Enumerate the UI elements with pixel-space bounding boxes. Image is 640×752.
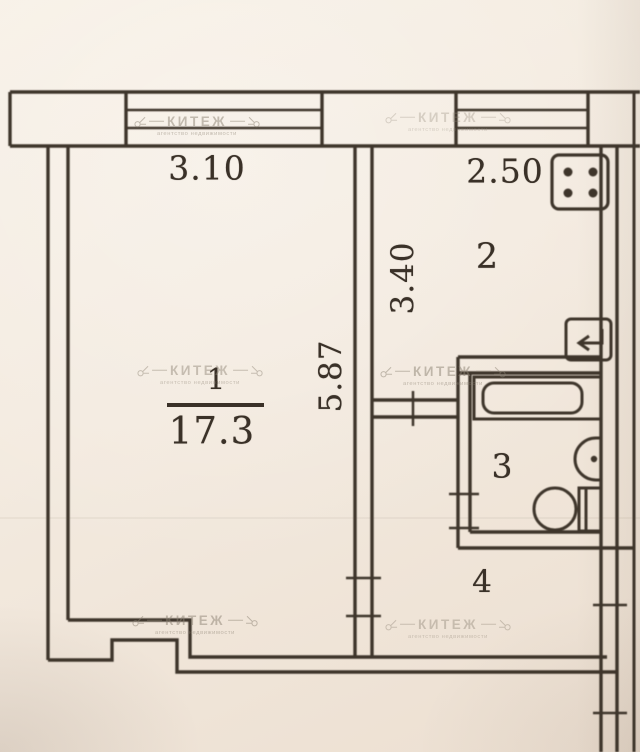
room1-partition-wall xyxy=(355,146,372,657)
corridor-bottom-wall xyxy=(372,400,458,417)
right-wall xyxy=(601,146,617,752)
watermark: КИТЕЖ агентство недвижимости xyxy=(132,613,258,636)
watermark-flourish-icon xyxy=(248,115,260,127)
watermark-flourish-icon xyxy=(499,618,511,630)
room3-number: 3 xyxy=(492,447,513,486)
kitchen-width-dimension: 2.50 xyxy=(466,152,543,191)
bathroom-door-ticks xyxy=(449,494,479,528)
watermark-flourish-icon xyxy=(380,365,392,377)
watermark: КИТЕЖ агентство недвижимости xyxy=(134,114,260,137)
room1-fraction-line xyxy=(167,403,264,407)
watermark-flourish-icon xyxy=(137,364,149,376)
entrance-door-ticks xyxy=(593,605,627,713)
watermark-flourish-icon xyxy=(385,618,397,630)
room1-depth-dimension: 5.87 xyxy=(313,339,349,412)
watermark-flourish-icon xyxy=(494,365,506,377)
watermark-flourish-icon xyxy=(385,111,397,123)
room4-number: 4 xyxy=(472,564,492,600)
watermark-flourish-icon xyxy=(251,364,263,376)
kitchen-depth-dimension: 3.40 xyxy=(385,241,421,314)
sink-icon xyxy=(575,438,601,480)
watermark: КИТЕЖ агентство недвижимости xyxy=(137,363,263,386)
watermark-flourish-icon xyxy=(134,115,146,127)
watermark: КИТЕЖ агентство недвижимости xyxy=(385,617,511,640)
room1-width-dimension: 3.10 xyxy=(168,149,245,188)
watermark-flourish-icon xyxy=(132,614,144,626)
vent-arrow-icon xyxy=(566,319,611,360)
room1-door-ticks xyxy=(346,578,381,616)
room2-number: 2 xyxy=(476,237,498,277)
watermark-flourish-icon xyxy=(499,111,511,123)
room1-area: 17.3 xyxy=(169,410,255,453)
floor-plan-photo: 3.10 2.50 3.40 5.87 1 17.3 2 3 4 КИТЕЖ а… xyxy=(0,0,640,752)
watermark: КИТЕЖ агентство недвижимости xyxy=(380,364,506,387)
paper-crease xyxy=(0,517,640,519)
watermark-flourish-icon xyxy=(246,614,258,626)
watermark: КИТЕЖ агентство недвижимости xyxy=(385,110,511,133)
exterior-top-wall xyxy=(10,92,640,146)
toilet-icon xyxy=(534,488,601,531)
